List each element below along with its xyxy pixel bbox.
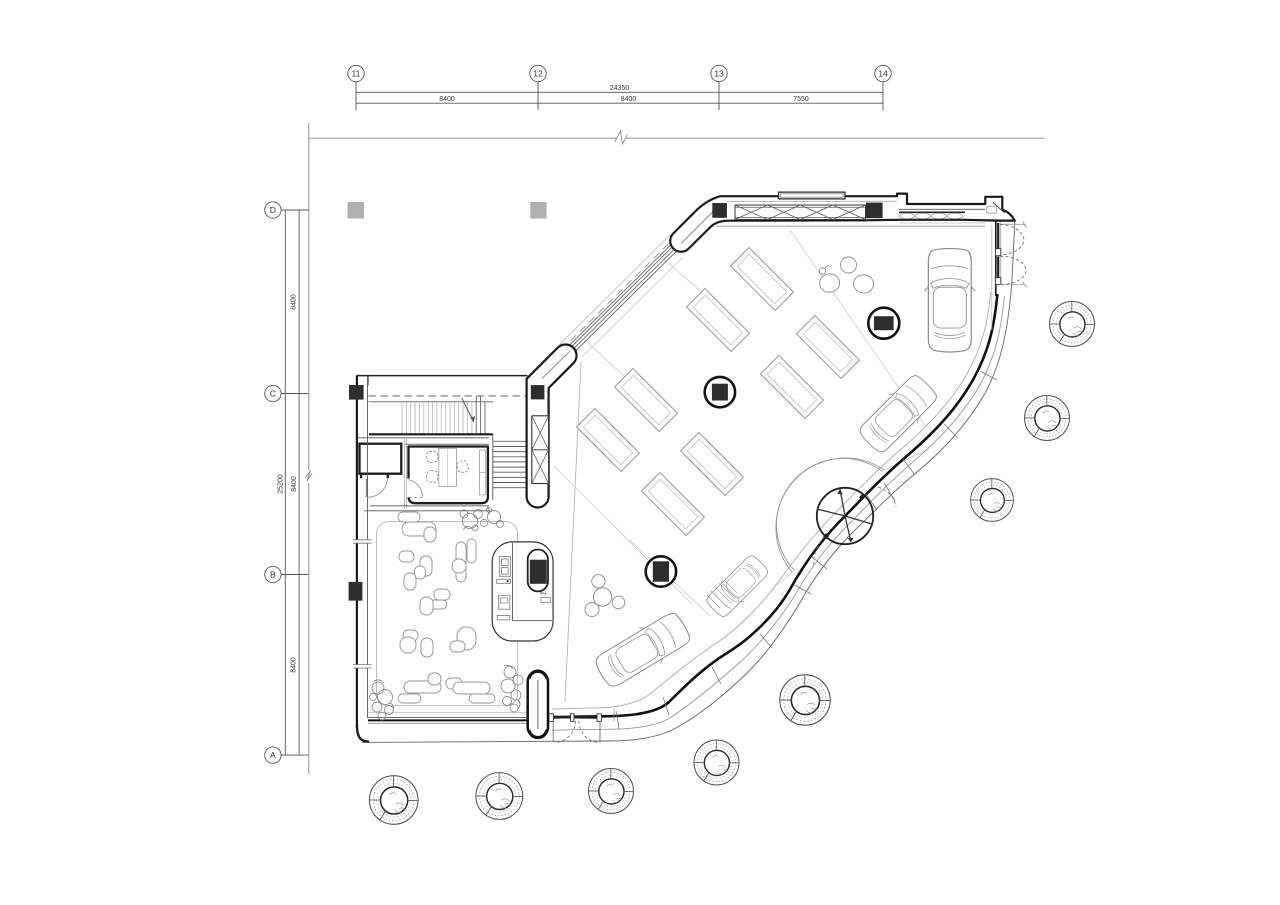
- svg-text:8400: 8400: [291, 294, 298, 310]
- svg-text:A: A: [270, 750, 276, 760]
- svg-text:12: 12: [533, 69, 543, 79]
- svg-text:14: 14: [878, 69, 888, 79]
- svg-text:25200: 25200: [278, 474, 285, 494]
- svg-text:11: 11: [352, 69, 361, 79]
- svg-text:8400: 8400: [439, 96, 455, 103]
- svg-text:B: B: [270, 570, 276, 580]
- svg-text:D: D: [270, 205, 276, 215]
- svg-text:7550: 7550: [793, 96, 809, 103]
- svg-text:8400: 8400: [291, 657, 298, 673]
- svg-text:24350: 24350: [610, 85, 630, 92]
- svg-text:13: 13: [714, 69, 724, 79]
- svg-text:8400: 8400: [291, 476, 298, 492]
- svg-text:8400: 8400: [621, 96, 637, 103]
- svg-text:BK◂: BK◂: [540, 592, 547, 596]
- svg-text:C: C: [270, 389, 276, 399]
